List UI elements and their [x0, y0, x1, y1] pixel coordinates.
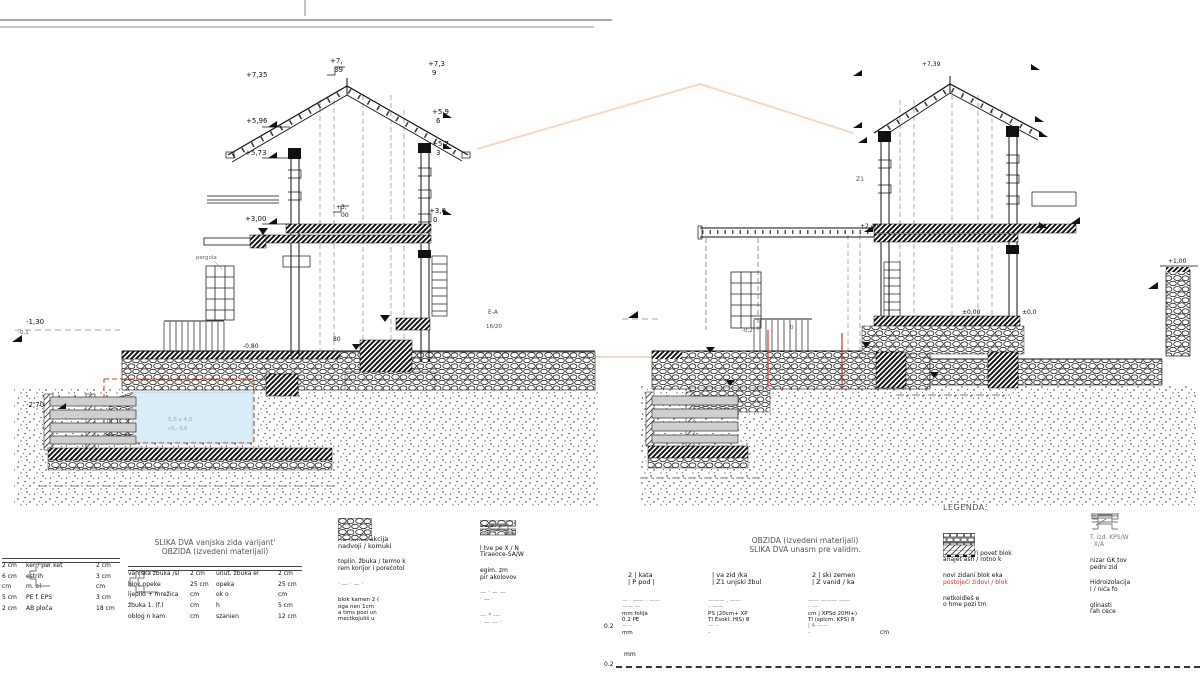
svg-text:6: 6: [436, 117, 441, 125]
background-roof-outline: [477, 84, 932, 357]
foundation-pad: [988, 352, 1018, 388]
svg-text:+5,73: +5,73: [245, 149, 266, 157]
layer-thickness: 5 cm: [2, 595, 24, 602]
svg-text:-1,30: -1,30: [26, 318, 44, 326]
legenda-label: rah cece: [1090, 609, 1116, 616]
svg-text:E-A: E-A: [488, 309, 499, 316]
svg-text:0: 0: [433, 216, 437, 224]
level-labels: +7,39 Z1 +2,40 ±0,00 ±0,0 +1,00 -0,2 0: [742, 61, 1187, 334]
layer-material: h: [216, 603, 276, 610]
sheet-top-rules: [0, 0, 612, 27]
layer-thickness: 6 cm: [2, 574, 24, 581]
svg-text:Z1: Z1: [856, 176, 864, 183]
gravel-swatch: [338, 518, 372, 540]
svg-text:+7,35: +7,35: [246, 71, 267, 79]
layer-material: unut. žbuka el: [216, 571, 276, 578]
layer-material: AB ploča: [26, 606, 94, 613]
assembly-margin-unit: cm: [880, 630, 889, 637]
floor-legend-title: SLIKA DVA vanjska zida varijant' OBZIDA …: [110, 538, 320, 556]
material-label: Tiraeoce-SA/W: [480, 552, 524, 559]
material-label: pir akolovov: [480, 575, 517, 582]
legenda-label: o hme pozi tm: [943, 602, 986, 609]
material-label: · — — ·: [480, 620, 502, 627]
layer-material: PE f. EPS: [26, 595, 94, 602]
legenda-label: · X/A: [1090, 542, 1129, 549]
layer-thickness: cm: [2, 584, 24, 591]
material-label: nadvoji / komuki: [338, 543, 392, 550]
assembly-group-header: 2 | kata | P pod |: [628, 572, 704, 587]
shutter-left: [731, 272, 761, 328]
compacted-layer: [122, 351, 340, 359]
assembly-margin-unit: mm: [624, 652, 636, 659]
material-label: mectkojuliš u: [338, 616, 379, 622]
foundation-wall: [360, 340, 412, 373]
floor-buildup-icon: [128, 569, 158, 593]
assembly-title-line1: OBZIDA (izvedeni materijali): [690, 536, 920, 545]
svg-text:±0,00: ±0,00: [962, 309, 981, 316]
layer-material: opeka: [216, 582, 276, 589]
svg-text:±0,0: ±0,0: [1022, 309, 1037, 316]
pool-water: [133, 392, 253, 443]
section-left: 5,0 x 4,0 +0,- 0,6: [12, 57, 598, 506]
legenda-label: pedni zid: [1090, 565, 1127, 572]
svg-text:+3,0: +3,0: [429, 207, 446, 215]
railing: [754, 319, 812, 352]
layer-thickness: 5 cm: [278, 603, 302, 610]
svg-text:-0,80: -0,80: [243, 343, 259, 350]
legenda-block: LEGENDA: Beton zidni kon:tri povet bloka…: [935, 503, 1198, 513]
floor-legend-panel-b: vanjska žbuka /sl2 cmunut. žbuka el2 cm …: [128, 566, 302, 625]
drawing-sheet: 5,0 x 4,0 +0,- 0,6: [0, 0, 1200, 673]
svg-text:-2,70: -2,70: [26, 401, 44, 409]
assembly-group-header: 2 | ski zemen | Z vanid / ka: [812, 572, 910, 587]
svg-text:+5,7: +5,7: [432, 140, 449, 148]
layer-thickness: 3 cm: [96, 595, 120, 602]
compacted-layer: [652, 351, 682, 359]
layer-thickness: 18 cm: [96, 606, 120, 613]
pergola-label: pergola: [196, 255, 217, 261]
layer-thickness: 2 cm: [2, 563, 24, 570]
layer-material: žbuka 1. (f.): [128, 603, 188, 610]
svg-text:+5,9: +5,9: [432, 108, 449, 116]
assembly-margin-value: 0.2: [604, 624, 614, 631]
shutter-wall: [884, 262, 900, 318]
shutter-left: [206, 266, 234, 320]
hidden-guides: [320, 95, 404, 350]
layer-thickness: 2 cm: [190, 571, 214, 578]
assembly-row: mm: [622, 630, 704, 636]
layer-material: ok o: [216, 592, 276, 599]
assembly-title-line2: SLIKA DVA unasm pre validm.: [690, 545, 920, 554]
assembly-header-line: | Z vanid / ka: [812, 579, 910, 586]
legenda-label: l / nića fo: [1090, 587, 1130, 594]
assembly-title: OBZIDA (izvedeni materijali) SLIKA DVA u…: [690, 536, 920, 554]
svg-text:80: 80: [333, 336, 341, 343]
layer-thickness: 2 cm: [278, 571, 302, 578]
shutter-right: [432, 256, 447, 316]
svg-text:+1,00: +1,00: [1168, 258, 1187, 265]
svg-text:0: 0: [790, 325, 794, 331]
canopy-slab: [698, 226, 878, 330]
foundation-pad: [876, 352, 906, 388]
svg-text:+7,39: +7,39: [922, 61, 941, 68]
assembly-group-rows: — · —— · —— —— — mm folija 0.2 PE — – mm: [622, 598, 704, 636]
svg-text:+3,00: +3,00: [245, 215, 266, 223]
layer-thickness: 12 cm: [278, 614, 302, 621]
floor-legend-title-line2: OBZIDA (izvedeni materijali): [110, 547, 320, 556]
assembly-group-header: | va zid /ka | Z1 unjski žbul: [712, 572, 804, 587]
svg-text:00: 00: [341, 212, 349, 219]
assembly-row: –: [808, 630, 912, 636]
floor-slab-ground: [874, 316, 1020, 326]
layer-thickness: 25 cm: [278, 582, 302, 589]
foundation-pad: [266, 374, 298, 396]
layer-thickness: cm: [190, 603, 214, 610]
svg-text:+3,: +3,: [336, 204, 347, 211]
gravel-band-lower: [930, 359, 1162, 385]
svg-text:-0,1: -0,1: [18, 330, 29, 336]
bracket-swatch: [1090, 511, 1120, 525]
layer-thickness: cm: [278, 592, 302, 599]
material-label: blok kamen 2 (: [338, 597, 379, 603]
layer-thickness: 2 cm: [2, 606, 24, 613]
layer-thickness: 25 cm: [190, 582, 214, 589]
legenda-label: anajet ash / rotno k: [943, 557, 1012, 564]
material-label: rem korijor i porećotol: [338, 566, 406, 573]
assembly-margin-value: 0.2: [604, 662, 614, 669]
svg-text:39: 39: [334, 66, 343, 74]
layer-thickness: cm: [190, 592, 214, 599]
svg-text:16/20: 16/20: [486, 324, 502, 330]
assembly-header-line: | Z1 unjski žbul: [712, 579, 804, 586]
bracket-swatch: [480, 520, 516, 536]
assembly-row: –: [708, 630, 804, 636]
pool-level-label: +0,- 0,6: [167, 426, 187, 432]
floor-legend-panel-a: 2 cmker / par ket2 cm 6 cmestrih3 cm cmm…: [2, 558, 120, 617]
assembly-legend: OBZIDA (izvedeni materijali) SLIKA DVA u…: [604, 536, 936, 554]
material-label: · — ·: [480, 597, 506, 604]
layer-thickness: 2 cm: [96, 563, 120, 570]
section-right: +7,39 Z1 +2,40 ±0,00 ±0,0 +1,00 -0,2 0: [622, 61, 1198, 506]
balcony-box: [1032, 192, 1076, 206]
stone-wall: [1148, 266, 1198, 356]
layer-material: ljepilo + mrežica: [128, 592, 188, 599]
material-label: · — · — ·: [338, 582, 363, 589]
right-ledge: [396, 318, 430, 330]
legenda-label-red: postojeći zidovi / blok: [943, 580, 1008, 587]
layer-thickness: cm: [190, 614, 214, 621]
svg-text:+7,: +7,: [330, 57, 343, 65]
layer-thickness: 3 cm: [96, 574, 120, 581]
svg-text:3: 3: [436, 149, 440, 157]
floor-slabs: [261, 224, 431, 243]
svg-text:+7,3: +7,3: [428, 60, 445, 68]
bottom-dashed-rule: [616, 666, 1200, 668]
assembly-group-rows: —— ——— —— – — cm | XPSd 20HI+) TI (splcm…: [808, 598, 912, 636]
brick-hatch-swatch: [943, 533, 975, 551]
svg-text:+2,40: +2,40: [860, 223, 879, 230]
layer-thickness: cm: [96, 584, 120, 591]
layer-material: szanien: [216, 614, 276, 621]
layer-material: oblog n kam: [128, 614, 188, 621]
svg-text:+5,96: +5,96: [246, 117, 268, 125]
pool-size-label: 5,0 x 4,0: [168, 417, 193, 423]
svg-text:-0,2: -0,2: [742, 328, 753, 334]
assembly-group-rows: ——— , —— – —— PS (20cm+ XP TI Esokl: HIS…: [708, 598, 804, 636]
floor-buildup-icon: [28, 562, 58, 588]
railing: [164, 321, 224, 352]
floor-legend-title-line1: SLIKA DVA vanjska zida varijant': [110, 538, 320, 547]
assembly-header-line: | P pod |: [628, 579, 704, 586]
svg-text:9: 9: [432, 69, 436, 77]
